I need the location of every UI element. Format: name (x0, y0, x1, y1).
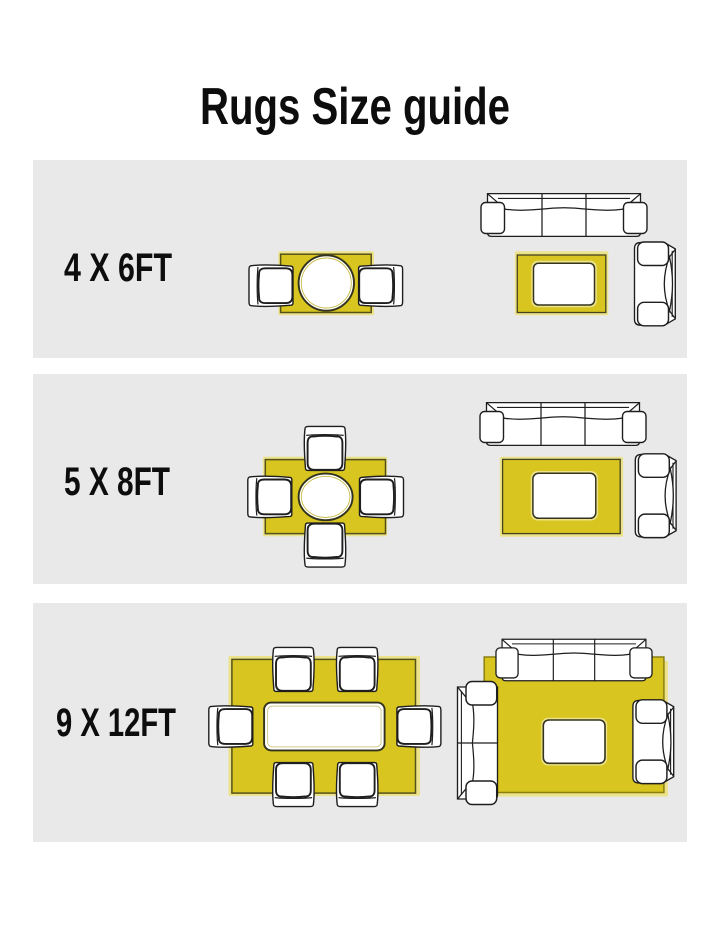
svg-text:Rugs Size guide: Rugs Size guide (200, 78, 510, 136)
svg-text:5 X 8FT: 5 X 8FT (64, 460, 170, 504)
svg-text:4 X 6FT: 4 X 6FT (64, 246, 172, 290)
svg-text:9 X 12FT: 9 X 12FT (56, 701, 176, 745)
